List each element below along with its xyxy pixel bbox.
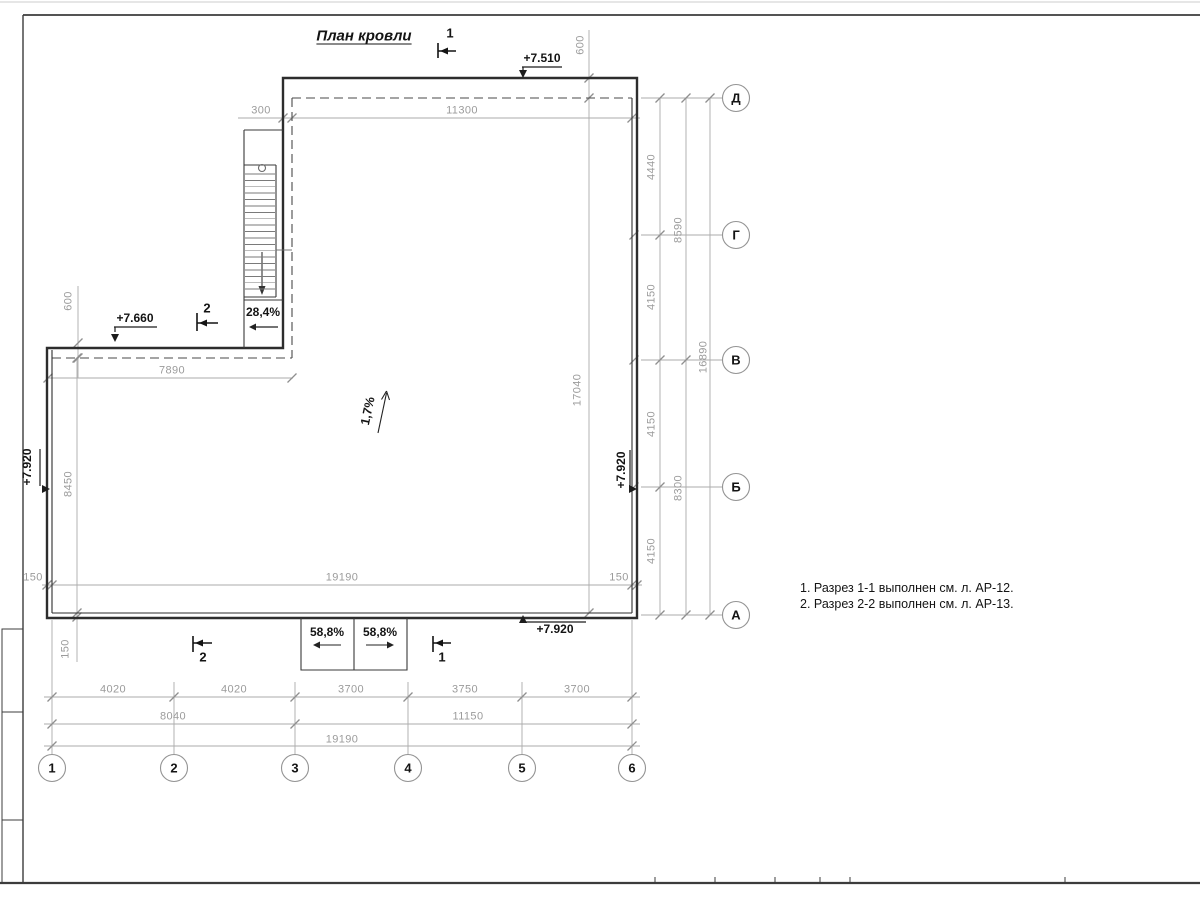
dim-left-overhang: 600	[64, 291, 75, 311]
scupper-slope-left: 58,8%	[310, 626, 344, 638]
note-line-1: 1. Разрез 1-1 выполнен см. л. АР-12.	[800, 581, 1014, 597]
section-1-bottom-label: 1	[438, 651, 445, 664]
dim-bottom-seg-1: 4020	[100, 685, 126, 696]
dim-right-group-2: 8300	[674, 475, 685, 501]
axis-col-1: 1	[48, 762, 55, 775]
building-walls	[47, 78, 637, 618]
drawing-title: План кровли	[316, 29, 411, 44]
axis-col-4: 4	[404, 762, 411, 775]
dim-left-span: 7890	[159, 366, 185, 377]
axis-row-a: А	[731, 609, 740, 622]
ladder-slope-arrow	[249, 324, 278, 331]
dim-wall-thickness-right: 150	[609, 573, 629, 584]
elevation-roof-main-bottom: +7.920	[536, 623, 573, 635]
dim-bottom-total: 19190	[326, 735, 359, 746]
elevation-marks	[40, 67, 637, 623]
note-line-2: 2. Разрез 2-2 выполнен см. л. АР-13.	[800, 597, 1014, 613]
dim-inner-width: 19190	[326, 573, 359, 584]
dim-bottom-seg-4: 3750	[452, 685, 478, 696]
dim-right-seg-2: 4150	[647, 284, 658, 310]
axis-col-6: 6	[628, 762, 635, 775]
dim-right-group-1: 8590	[674, 217, 685, 243]
dim-top-overhang: 600	[576, 35, 587, 55]
axis-col-2: 2	[170, 762, 177, 775]
dim-bottom-seg-2: 4020	[221, 685, 247, 696]
dim-left-height: 8450	[64, 471, 75, 497]
section-1-top-label: 1	[446, 27, 453, 40]
elevation-roof-main-left: +7.920	[21, 448, 33, 485]
section-2-left-label: 2	[203, 302, 210, 315]
elevation-roof-high: +7.510	[523, 52, 560, 64]
axis-col-5: 5	[518, 762, 525, 775]
dim-right-seg-3: 4150	[647, 411, 658, 437]
dim-inner-height: 17040	[573, 374, 584, 407]
axis-row-g: Г	[732, 229, 739, 242]
axis-row-b: Б	[731, 481, 740, 494]
axis-row-v: В	[731, 354, 740, 367]
dim-bottom-group-1: 8040	[160, 712, 186, 723]
roof-plan-drawing	[0, 0, 1200, 900]
section-2-bottom-label: 2	[199, 651, 206, 664]
dim-wall-thickness-bottom: 150	[61, 639, 72, 659]
section-notes: 1. Разрез 1-1 выполнен см. л. АР-12. 2. …	[800, 581, 1014, 612]
dim-top-offset: 300	[251, 106, 271, 117]
axis-bubbles	[39, 85, 750, 782]
dim-right-seg-1: 4440	[647, 154, 658, 180]
axis-row-d: Д	[731, 92, 740, 105]
ladder-treads	[245, 168, 275, 294]
dim-top-span: 11300	[446, 106, 478, 117]
dimension-ticks	[43, 74, 715, 751]
dim-right-total: 16890	[699, 341, 710, 374]
elevation-roof-ledge: +7.660	[116, 312, 153, 324]
elevation-roof-main-right: +7.920	[615, 451, 627, 488]
dim-wall-thickness-left: 150	[23, 573, 43, 584]
dim-right-seg-4: 4150	[647, 538, 658, 564]
sheet-frame	[0, 2, 1200, 883]
axis-col-3: 3	[291, 762, 298, 775]
dim-bottom-seg-3: 3700	[338, 685, 364, 696]
scupper-slope-right: 58,8%	[363, 626, 397, 638]
main-slope-arrow	[378, 391, 390, 433]
dim-bottom-seg-5: 3700	[564, 685, 590, 696]
drawing-sheet: План кровли 1 +7.510 600 300 11300 Д Г В…	[0, 0, 1200, 900]
dim-bottom-group-2: 11150	[453, 712, 484, 723]
ladder-slope-label: 28,4%	[246, 306, 280, 318]
